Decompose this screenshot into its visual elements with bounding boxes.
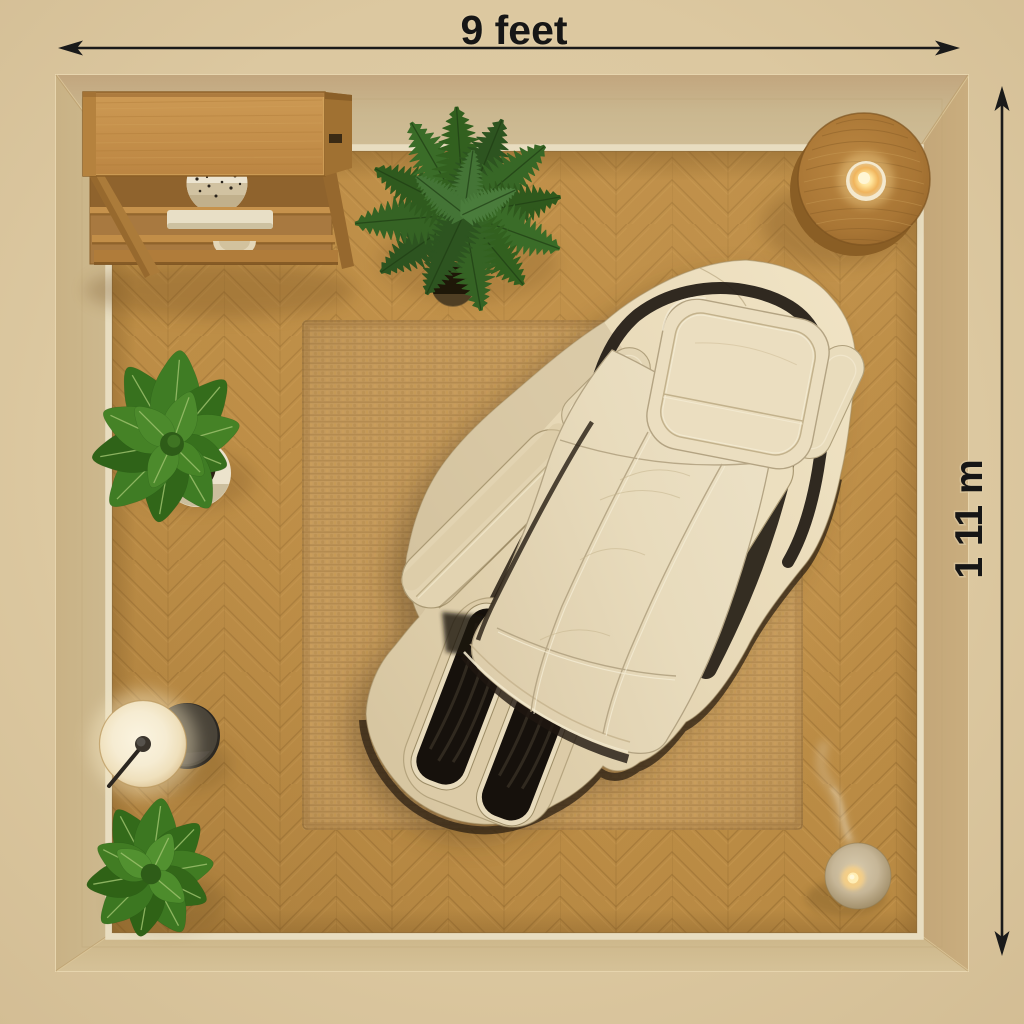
svg-text:9 feet: 9 feet (460, 7, 567, 53)
svg-text:1 11 m: 1 11 m (948, 459, 991, 578)
